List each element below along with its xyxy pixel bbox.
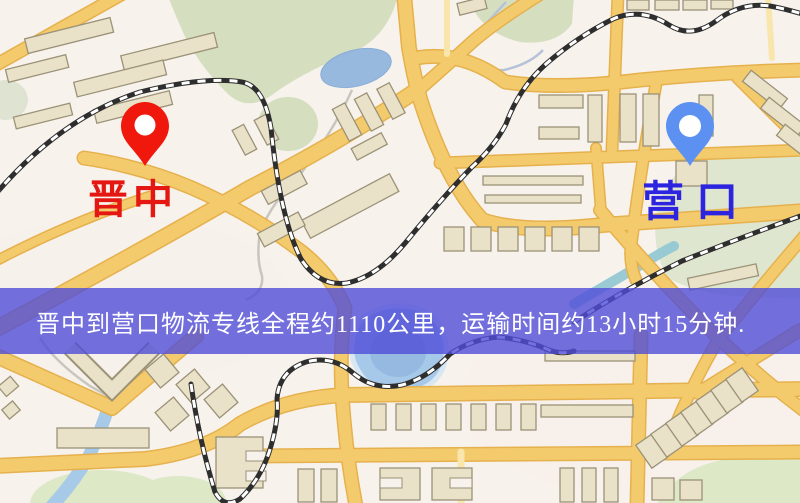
- route-info-banner: 晋中到营口物流专线全程约1110公里，运输时间约13小时15分钟.: [0, 288, 800, 354]
- origin-pin-icon: [117, 99, 173, 169]
- map-canvas: [0, 0, 800, 503]
- map-screenshot: 晋中 营口 晋中到营口物流专线全程约1110公里，运输时间约13小时15分钟.: [0, 0, 800, 503]
- destination-pin-icon: [662, 99, 718, 169]
- route-info-text: 晋中到营口物流专线全程约1110公里，运输时间约13小时15分钟.: [0, 304, 745, 339]
- origin-label: 晋中: [88, 180, 178, 220]
- destination-label: 营口: [642, 182, 750, 224]
